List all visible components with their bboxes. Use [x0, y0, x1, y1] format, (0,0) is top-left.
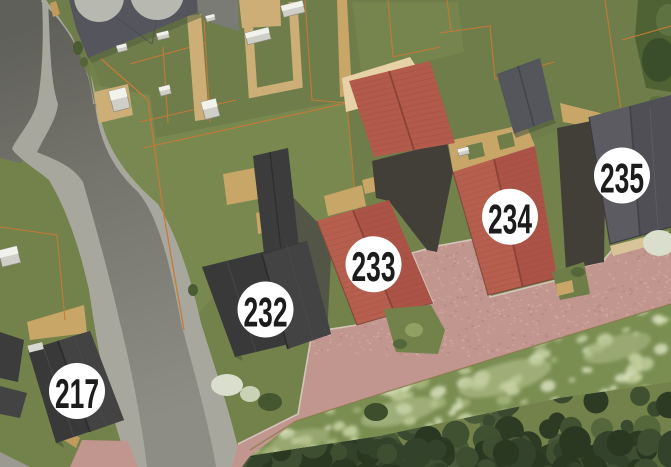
svg-text:217: 217 [55, 370, 99, 417]
svg-text:232: 232 [244, 288, 288, 335]
svg-text:233: 233 [352, 243, 396, 290]
svg-text:234: 234 [488, 196, 532, 243]
svg-text:235: 235 [600, 154, 644, 201]
